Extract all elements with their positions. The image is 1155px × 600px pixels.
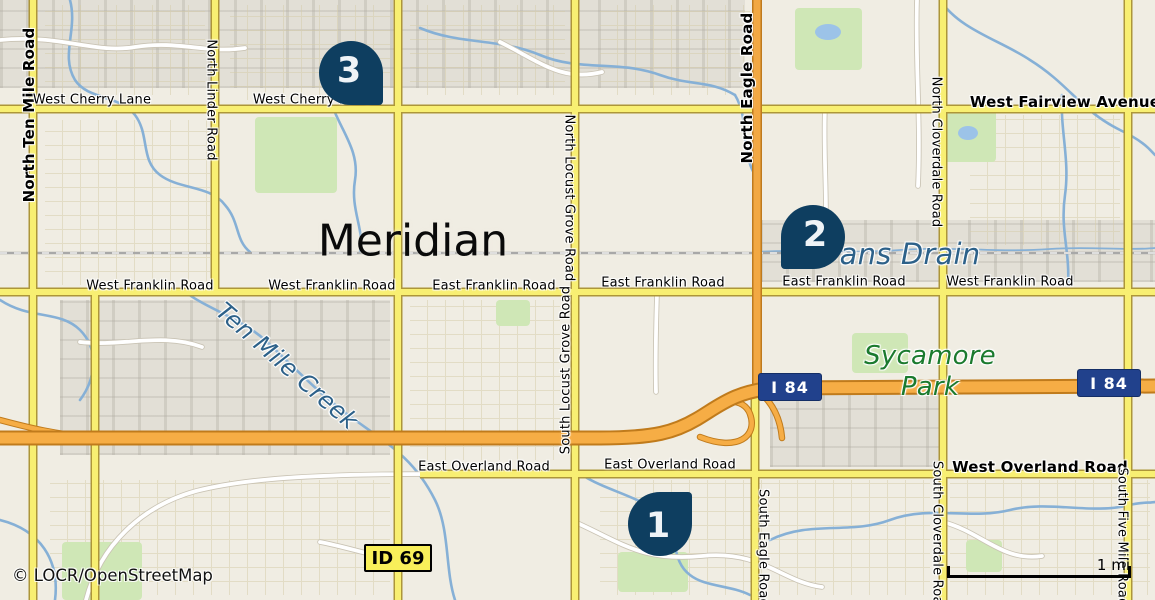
scale-label: 1 mi — [1097, 556, 1130, 574]
marker-number: 3 — [337, 54, 361, 89]
map-marker-1[interactable]: 1 — [628, 492, 692, 556]
scale-bar: 1 mi — [947, 563, 1131, 578]
map-attribution: © LOCR/OpenStreetMap — [12, 566, 213, 585]
map-marker-2[interactable]: 2 — [781, 205, 845, 269]
route-shield: I 84 — [759, 374, 821, 400]
scale-line — [947, 575, 1131, 578]
marker-number: 1 — [646, 509, 670, 544]
route-shield: I 84 — [1078, 370, 1140, 396]
map-marker-3[interactable]: 3 — [319, 41, 383, 105]
city-label: Meridian — [318, 216, 508, 267]
map-roads-layer — [0, 0, 1155, 600]
map-canvas[interactable]: Meridian North Ten Mile RoadNorth Linder… — [0, 0, 1155, 600]
marker-number: 2 — [803, 218, 827, 253]
route-shield: ID 69 — [364, 544, 432, 572]
